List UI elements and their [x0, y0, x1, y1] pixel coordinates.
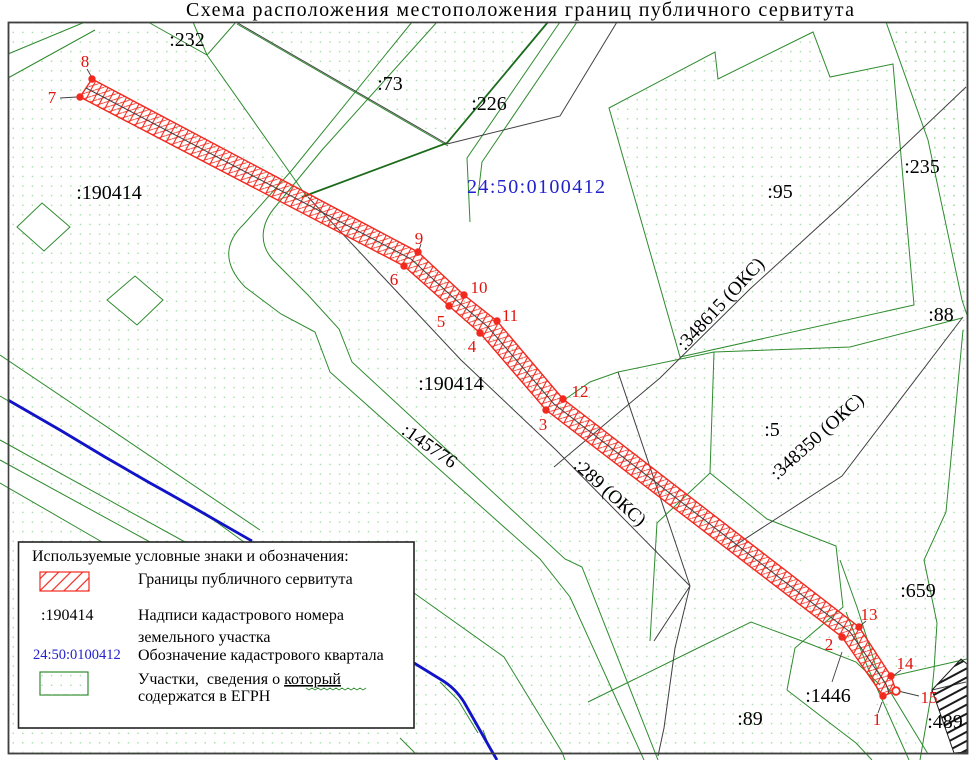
svg-text::1446: :1446	[805, 685, 851, 707]
svg-text::232: :232	[169, 29, 205, 51]
svg-text:содержатся в ЕГРН: содержатся в ЕГРН	[138, 688, 271, 705]
svg-text:11: 11	[502, 306, 518, 325]
svg-text:Участки, сведения о который: Участки, сведения о который	[138, 671, 341, 688]
svg-text:6: 6	[390, 270, 399, 289]
svg-text:14: 14	[897, 654, 915, 673]
svg-text::73: :73	[377, 73, 403, 95]
svg-text::235: :235	[904, 156, 940, 178]
svg-text::489: :489	[927, 711, 963, 733]
svg-text:12: 12	[572, 382, 589, 401]
svg-text:8: 8	[81, 52, 90, 71]
svg-text:9: 9	[415, 229, 424, 248]
svg-text:10: 10	[471, 278, 488, 297]
svg-text::95: :95	[767, 181, 793, 203]
svg-text:Границы публичного сервитута: Границы публичного сервитута	[138, 571, 353, 588]
svg-text:3: 3	[539, 415, 548, 434]
svg-text::89: :89	[737, 708, 763, 730]
svg-text::226: :226	[471, 93, 507, 115]
svg-text:13: 13	[861, 605, 878, 624]
svg-text:1: 1	[873, 710, 882, 729]
svg-text:Надписи кадастрового номера: Надписи кадастрового номера	[138, 607, 344, 624]
svg-text:Схема расположения местоположе: Схема расположения местоположения границ…	[186, 0, 854, 21]
svg-text::190414: :190414	[41, 607, 93, 624]
svg-text::659: :659	[900, 580, 936, 602]
svg-text:15: 15	[921, 688, 938, 707]
svg-text::88: :88	[928, 304, 954, 326]
svg-text:24:50:0100412: 24:50:0100412	[467, 176, 605, 198]
svg-text::190414: :190414	[418, 373, 484, 395]
svg-text:2: 2	[825, 635, 834, 654]
svg-text:Обозначение кадастрового кварт: Обозначение кадастрового квартала	[138, 647, 384, 664]
svg-text::190414: :190414	[76, 182, 142, 204]
svg-text::5: :5	[764, 419, 780, 441]
svg-text:4: 4	[468, 337, 477, 356]
svg-text:Используемые условные знаки и: Используемые условные знаки и обозначени…	[32, 548, 349, 565]
svg-text:5: 5	[437, 312, 446, 331]
svg-text:7: 7	[48, 88, 57, 107]
svg-text:земельного участка: земельного участка	[138, 629, 271, 646]
svg-text:24:50:0100412: 24:50:0100412	[33, 647, 121, 663]
